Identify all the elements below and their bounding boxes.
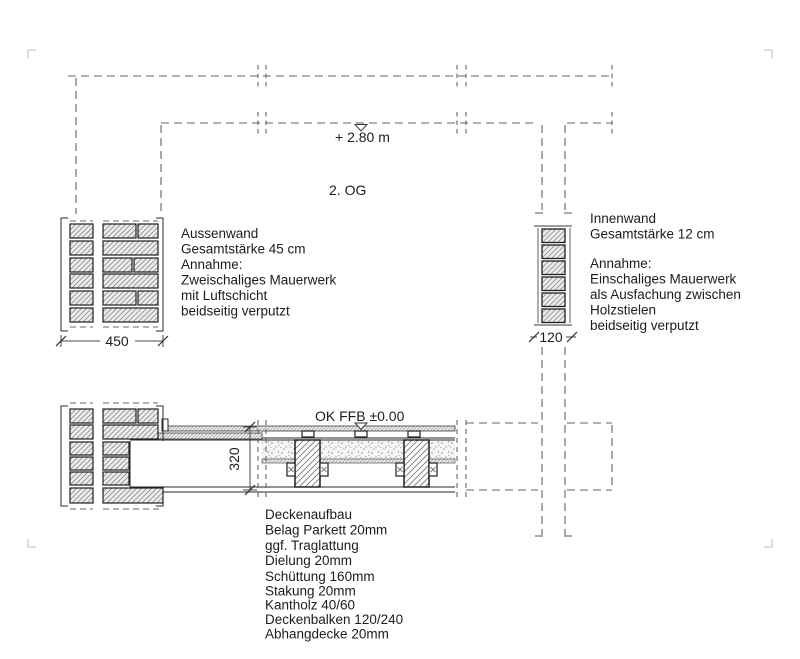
- brick: [103, 258, 132, 272]
- brick: [542, 261, 565, 275]
- note-line: Deckenaufbau: [265, 507, 352, 522]
- floor-level-label: OK FFB ±0.00: [315, 408, 405, 424]
- traglattung-battens: [302, 431, 420, 437]
- inner-leaf-bricks: [103, 224, 158, 322]
- note-line: Gesamtstärke 45 cm: [181, 242, 306, 257]
- brick: [542, 293, 565, 307]
- aussenwand-lower-section: [61, 403, 163, 509]
- brick: [134, 258, 158, 272]
- deckenaufbau-note: Deckenaufbau Belag Parkett 20mm ggf. Tra…: [265, 507, 403, 642]
- note-line: als Ausfachung zwischen: [590, 287, 741, 302]
- brick: [103, 409, 136, 423]
- note-line: Gesamtstärke 12 cm: [590, 227, 715, 242]
- outer-leaf-bricks: [70, 224, 93, 322]
- brick: [103, 241, 158, 255]
- corner-mark-bottom-right: [764, 539, 772, 547]
- parkett-layer: [168, 426, 455, 431]
- floor-continuation-dashed: [466, 423, 612, 490]
- dielung-layer: [158, 433, 262, 439]
- note-line: Einschaliges Mauerwerk: [590, 272, 737, 287]
- note-line: Stakung 20mm: [265, 584, 356, 599]
- brick: [70, 425, 93, 439]
- brick: [103, 442, 129, 455]
- brick: [70, 224, 93, 238]
- brick: [138, 224, 158, 238]
- note-line: Innenwand: [590, 211, 656, 226]
- brick: [542, 245, 565, 259]
- brick: [70, 442, 93, 455]
- note-line: Schüttung 160mm: [265, 569, 375, 584]
- brick: [103, 291, 136, 305]
- innenwand-width-value: 120: [539, 329, 563, 345]
- floor-section: [130, 419, 612, 500]
- note-line: Aussenwand: [181, 226, 258, 241]
- innenwand-upper-section: [534, 226, 572, 325]
- brick: [70, 291, 93, 305]
- outer-leaf-bricks: [70, 409, 93, 503]
- innenwand-lower-dashed: [542, 347, 565, 535]
- aussenwand-note: Aussenwand Gesamtstärke 45 cm Annahme: Z…: [181, 226, 337, 319]
- brick: [138, 409, 158, 423]
- batten: [408, 431, 420, 437]
- note-line: Abhangdecke 20mm: [265, 627, 389, 642]
- inner-leaf-bricks: [103, 409, 163, 503]
- batten: [302, 431, 314, 437]
- note-line: Annahme:: [590, 256, 652, 271]
- note-line: Deckenbalken 120/240: [265, 612, 403, 627]
- brick: [70, 472, 93, 485]
- note-line: beidseitig verputzt: [590, 318, 699, 333]
- brick: [70, 457, 93, 470]
- brick: [70, 488, 93, 503]
- brick: [70, 409, 93, 423]
- innenwand-bricks: [542, 229, 565, 323]
- aussenwand-upper-section: [61, 218, 163, 331]
- brick: [103, 308, 158, 322]
- brick: [138, 291, 158, 305]
- brick: [103, 472, 129, 485]
- deckenbalken-beam: [295, 440, 320, 487]
- drawing-canvas: + 2.80 m 2. OG: [0, 0, 800, 659]
- dimension-450: 450: [56, 333, 168, 349]
- corner-mark-bottom-left: [28, 539, 36, 547]
- upper-level-label: + 2.80 m: [335, 129, 390, 145]
- brick: [103, 457, 129, 470]
- deckenbalken-beam: [404, 440, 429, 487]
- note-line: Zweischaliges Mauerwerk: [181, 273, 337, 288]
- note-line: beidseitig verputzt: [181, 304, 290, 319]
- note-line: Annahme:: [181, 257, 243, 272]
- aussenwand-width-value: 450: [105, 333, 129, 349]
- brick: [542, 229, 565, 243]
- floor-thickness-value: 320: [226, 447, 242, 471]
- note-line: mit Luftschicht: [181, 288, 268, 303]
- note-line: Belag Parkett 20mm: [265, 523, 387, 538]
- storey-label: 2. OG: [329, 182, 366, 198]
- brick: [70, 274, 93, 288]
- brick: [542, 277, 565, 291]
- brick: [103, 224, 136, 238]
- innenwand-note: Innenwand Gesamtstärke 12 cm Annahme: Ei…: [590, 211, 741, 333]
- brick: [70, 241, 93, 255]
- dimension-120: 120: [529, 329, 577, 345]
- brick: [103, 274, 158, 288]
- brick: [70, 308, 93, 322]
- brick: [542, 309, 565, 323]
- note-line: ggf. Traglattung: [265, 538, 359, 553]
- note-line: Dielung 20mm: [265, 553, 352, 568]
- note-line: Holzstielen: [590, 303, 656, 318]
- corner-mark-top-right: [764, 50, 772, 58]
- brick: [103, 425, 158, 439]
- note-line: Kantholz 40/60: [265, 598, 355, 613]
- brick: [103, 488, 163, 503]
- break-marks-upper: [258, 65, 612, 134]
- brick: [70, 258, 93, 272]
- batten: [355, 431, 367, 437]
- architectural-section-drawing: + 2.80 m 2. OG: [0, 0, 800, 659]
- corner-mark-top-left: [28, 50, 36, 58]
